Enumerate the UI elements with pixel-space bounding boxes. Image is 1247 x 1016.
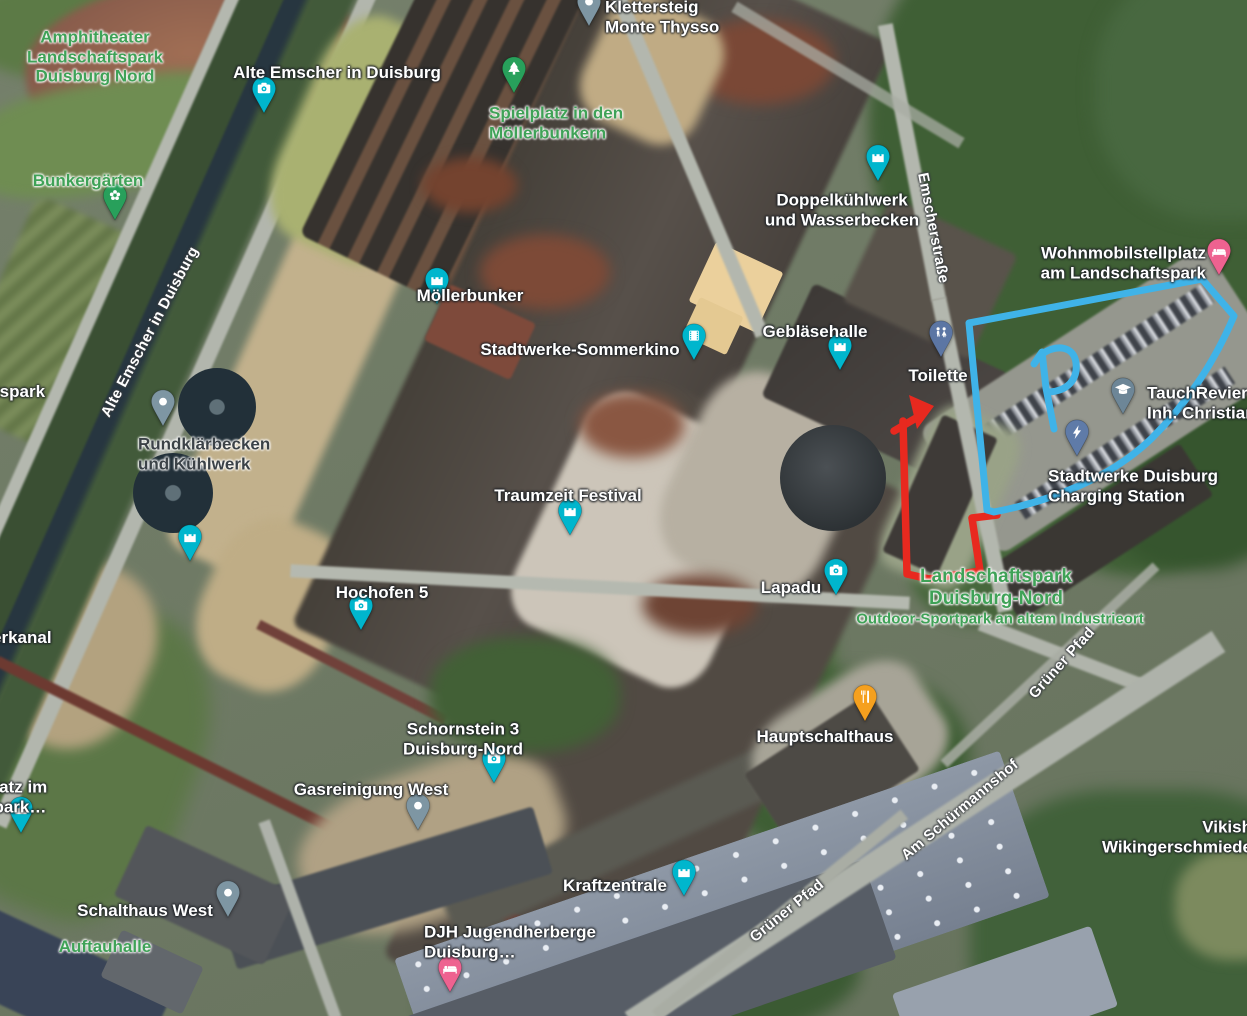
label-line: Schornstein 3 [403,719,523,739]
label-line: Rundklärbecken [138,434,270,454]
pin-wohnmobilstellplatz[interactable] [1206,238,1233,281]
label-djh-jugendherberge-duisburg[interactable]: DJH JugendherbergeDuisburg… [424,922,596,961]
label-schornstein-3-duisburg-nord[interactable]: Schornstein 3Duisburg-Nord [403,719,523,758]
film-icon [682,324,705,360]
label-line: Wikingerschmiede [1102,837,1247,857]
label-line: TauchRevierC [1147,383,1247,403]
label-line: Kraftzentrale [563,876,667,896]
label-gasreinigung-west[interactable]: Gasreinigung West [294,780,449,800]
label-line: Duisburg-Nord [920,588,1072,610]
label-landschaftspark-duisburg-nord[interactable]: LandschaftsparkDuisburg-Nord [920,566,1072,610]
label-line: Spielplatz in den [489,103,623,123]
label-line: Stadtwerke Duisburg [1048,466,1218,486]
label-line: und Kühlwerk [138,454,270,474]
road-label-emscherstrasse: Emscherstraße [914,171,952,285]
label-lapadu[interactable]: Lapadu [761,578,821,598]
label-doppelkuehlwerk-und-wasserbecken[interactable]: Doppelkühlwerkund Wasserbecken [765,190,919,229]
label-spielplatz-in-den-moellerbunkern[interactable]: Spielplatz in denMöllerbunkern [489,103,623,142]
label-line: spark… [0,797,47,817]
pin-sommerkino[interactable] [681,323,708,366]
label-line: Möllerbunker [417,286,524,306]
pin-schalthaus-west[interactable] [215,880,242,923]
pin-kraftzentrale[interactable] [671,859,698,902]
label-line: Gasreinigung West [294,780,449,800]
castle-icon [866,145,889,181]
label-line: Duisburg… [424,942,596,962]
label-line: Monte Thysso [605,17,719,37]
label-kraftzentrale[interactable]: Kraftzentrale [563,876,667,896]
pin-tauchrevier[interactable] [1110,377,1137,420]
dot-icon [216,881,239,917]
label-klettersteig-monte-thysso[interactable]: KlettersteigMonte Thysso [605,0,719,37]
pin-klettersteig[interactable] [576,0,603,32]
label-line: DJH Jugendherberge [424,922,596,942]
label-line: Traumzeit Festival [494,486,641,506]
label-line: Charging Station [1048,486,1218,506]
label-alte-emscher-in-duisburg[interactable]: Alte Emscher in Duisburg [233,63,441,83]
label-stadtwerke-duisburg-charging-station[interactable]: Stadtwerke DuisburgCharging Station [1048,466,1218,505]
label-amphitheater-landschaftspark[interactable]: AmphitheaterLandschaftsparkDuisburg Nord [27,27,163,86]
label-auftauhalle[interactable]: Auftauhalle [59,937,152,957]
label-line: und Wasserbecken [765,210,919,230]
pin-rundklaerbecken[interactable] [150,389,177,432]
dot-icon [151,390,174,426]
label-toilette[interactable]: Toilette [908,366,967,386]
label-stadtwerke-sommerkino[interactable]: Stadtwerke-Sommerkino [480,340,679,360]
label-hochofen-5[interactable]: Hochofen 5 [336,583,429,603]
label-moellerbunker[interactable]: Möllerbunker [417,286,524,306]
label-line: Landschaftspark [920,566,1072,588]
label-line: am Landschaftspark [1041,263,1206,283]
pin-toilette[interactable] [928,320,955,363]
label-line: Hochofen 5 [336,583,429,603]
label-hauptschalthaus[interactable]: Hauptschalthaus [757,727,894,747]
label-line: platz im [0,777,47,797]
map-canvas[interactable]: AmphitheaterLandschaftsparkDuisburg Nord… [0,0,1247,1016]
label-edge-label-erkanal[interactable]: erkanal [0,628,52,648]
label-line: Auftauhalle [59,937,152,957]
gradcap-icon [1111,378,1134,414]
label-line: Vikish [1102,817,1247,837]
label-line: Stadtwerke-Sommerkino [480,340,679,360]
camera-icon [824,559,847,595]
label-line: tspark [0,382,45,402]
label-tauchrevier[interactable]: TauchRevierCInh. Christian [1147,383,1247,422]
castle-icon [178,525,201,561]
pin-pumphouse[interactable] [177,524,204,567]
wc-icon [929,321,952,357]
label-line: Wohnmobilstellplatz [1041,243,1206,263]
label-line: Landschaftspark [27,47,163,67]
label-line: Duisburg Nord [27,67,163,87]
lightning-icon [1065,420,1088,456]
label-line: Lapadu [761,578,821,598]
label-edge-label-tspark[interactable]: tspark [0,382,45,402]
road-label-gruener-pfad-south: Grüner Pfad [747,876,828,946]
label-line: Outdoor-Sportpark an altem Industrieort [856,610,1144,627]
label-traumzeit-festival[interactable]: Traumzeit Festival [494,486,641,506]
road-label-gruener-pfad-north: Grüner Pfad [1025,624,1098,703]
label-line: Hauptschalthaus [757,727,894,747]
label-vikish-wikingerschmiede[interactable]: VikishWikingerschmiede [1102,817,1247,856]
pin-spielplatz[interactable] [501,56,528,99]
pin-charging-station[interactable] [1064,419,1091,462]
map-overlay: AmphitheaterLandschaftsparkDuisburg Nord… [0,0,1247,1016]
pin-lapadu[interactable] [823,558,850,601]
label-schalthaus-west[interactable]: Schalthaus West [77,901,213,921]
label-edge-label-platz-im-park[interactable]: platz imspark… [0,777,47,816]
label-geblaesehalle[interactable]: Gebläsehalle [763,322,868,342]
pin-doppelkuehlwerk[interactable] [865,144,892,187]
label-line: Alte Emscher in Duisburg [233,63,441,83]
label-line: Inh. Christian [1147,403,1247,423]
pin-hauptschalthaus[interactable] [852,684,879,727]
label-rundklaerbecken-und-kuehlwerk[interactable]: Rundklärbeckenund Kühlwerk [138,434,270,473]
label-line: Schalthaus West [77,901,213,921]
road-label-am-schuermannshof: Am Schürmannshof [898,756,1022,864]
label-outdoor-sportpark[interactable]: Outdoor-Sportpark an altem Industrieort [856,610,1144,627]
label-wohnmobilstellplatz-am-landschaftspark[interactable]: Wohnmobilstellplatzam Landschaftspark [1041,243,1206,282]
label-line: erkanal [0,628,52,648]
castle-icon [672,860,695,896]
restaurant-icon [853,685,876,721]
label-line: Gebläsehalle [763,322,868,342]
label-line: Möllerbunkern [489,123,623,143]
label-bunkergaerten[interactable]: Bunkergärten [33,171,144,191]
label-line: Klettersteig [605,0,719,17]
label-line: Duisburg-Nord [403,739,523,759]
label-line: Amphitheater [27,27,163,47]
bed-icon [1207,239,1230,275]
label-line: Bunkergärten [33,171,144,191]
label-line: Toilette [908,366,967,386]
label-line: Doppelkühlwerk [765,190,919,210]
